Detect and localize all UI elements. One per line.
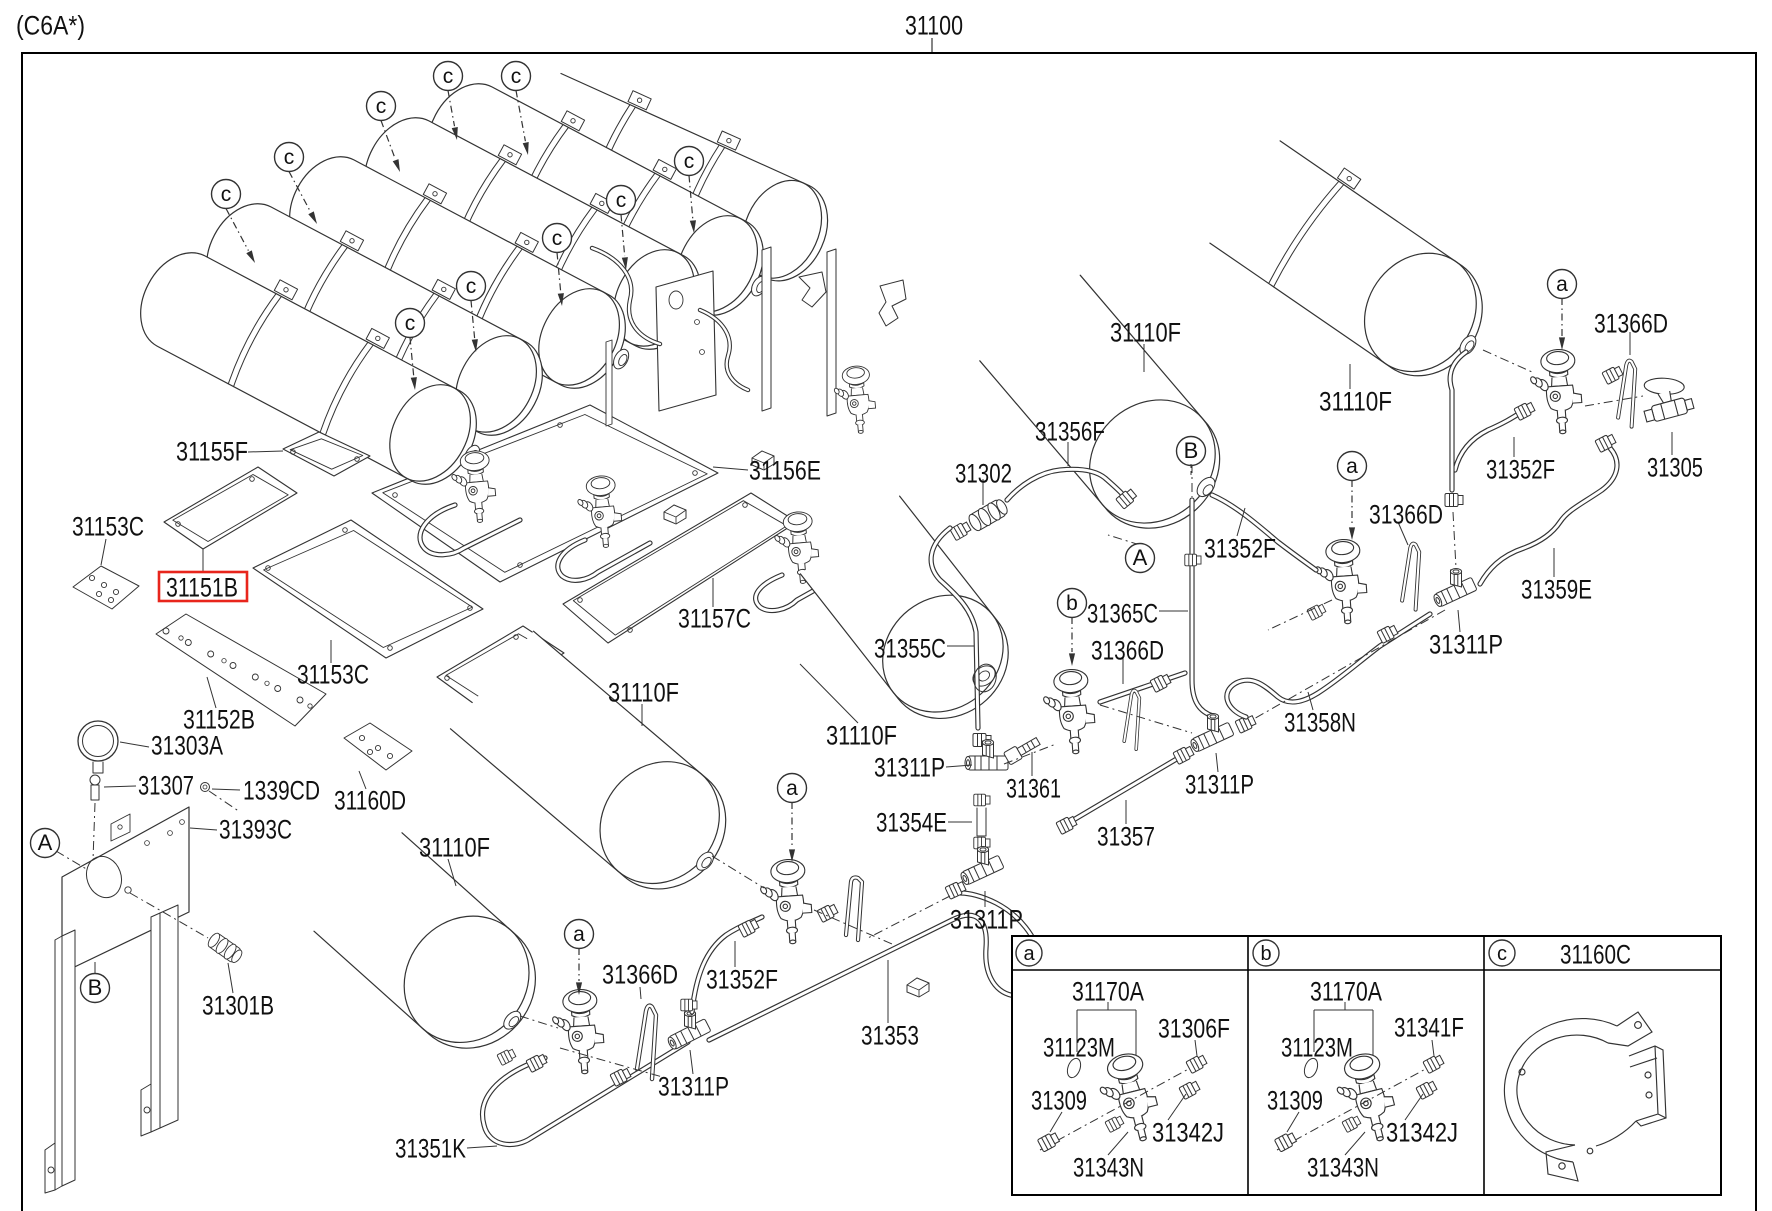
svg-text:31365C: 31365C <box>1087 599 1158 629</box>
svg-text:31100: 31100 <box>905 11 963 41</box>
svg-text:31354E: 31354E <box>876 808 947 838</box>
svg-text:31157C: 31157C <box>678 604 751 634</box>
svg-text:c: c <box>1497 943 1507 965</box>
svg-text:B: B <box>1184 438 1199 463</box>
svg-text:B: B <box>88 975 103 1000</box>
svg-text:31110F: 31110F <box>1319 387 1392 417</box>
svg-text:31302: 31302 <box>955 459 1012 489</box>
svg-text:31301B: 31301B <box>202 991 274 1021</box>
svg-text:31341F: 31341F <box>1394 1013 1464 1043</box>
svg-text:31110F: 31110F <box>608 678 679 708</box>
svg-text:31353: 31353 <box>861 1021 919 1051</box>
svg-text:a: a <box>573 923 585 946</box>
svg-text:31311P: 31311P <box>950 905 1023 935</box>
svg-text:31366D: 31366D <box>602 960 678 990</box>
svg-text:b: b <box>1260 943 1271 965</box>
svg-text:31366D: 31366D <box>1091 636 1164 666</box>
svg-text:31393C: 31393C <box>219 815 292 845</box>
svg-text:31366D: 31366D <box>1369 500 1443 530</box>
svg-text:a: a <box>786 777 798 800</box>
svg-text:31311P: 31311P <box>1429 630 1503 660</box>
svg-text:A: A <box>38 830 53 855</box>
svg-text:31306F: 31306F <box>1158 1014 1230 1044</box>
svg-text:31352F: 31352F <box>1204 534 1276 564</box>
svg-text:31123M: 31123M <box>1043 1033 1115 1063</box>
svg-text:31156E: 31156E <box>749 456 821 486</box>
svg-text:A: A <box>1133 545 1148 570</box>
svg-text:c: c <box>221 183 232 206</box>
svg-text:c: c <box>684 150 695 173</box>
svg-text:c: c <box>511 65 522 88</box>
svg-text:31303A: 31303A <box>151 731 223 761</box>
svg-text:c: c <box>552 227 563 250</box>
svg-text:31151B: 31151B <box>166 573 238 603</box>
svg-text:31110F: 31110F <box>826 721 897 751</box>
svg-text:31309: 31309 <box>1267 1086 1323 1116</box>
svg-text:(C6A*): (C6A*) <box>16 11 85 41</box>
svg-text:31170A: 31170A <box>1310 977 1382 1007</box>
svg-text:31355C: 31355C <box>874 634 946 664</box>
svg-text:31366D: 31366D <box>1594 309 1668 339</box>
svg-text:31342J: 31342J <box>1386 1118 1458 1148</box>
svg-text:c: c <box>466 275 477 298</box>
svg-text:31110F: 31110F <box>1110 318 1181 348</box>
svg-text:31309: 31309 <box>1031 1086 1087 1116</box>
svg-text:c: c <box>284 146 295 169</box>
svg-text:a: a <box>1556 273 1568 296</box>
svg-text:31155F: 31155F <box>176 437 248 467</box>
svg-text:31307: 31307 <box>138 771 194 801</box>
svg-text:31352F: 31352F <box>1486 455 1555 485</box>
svg-text:31358N: 31358N <box>1284 708 1356 738</box>
svg-text:31123M: 31123M <box>1281 1033 1353 1063</box>
svg-text:31160C: 31160C <box>1560 940 1631 970</box>
svg-text:c: c <box>376 95 387 118</box>
svg-text:31359E: 31359E <box>1521 575 1592 605</box>
svg-text:c: c <box>616 189 627 212</box>
svg-text:31342J: 31342J <box>1152 1118 1224 1148</box>
svg-text:31110F: 31110F <box>419 833 490 863</box>
svg-text:31361: 31361 <box>1006 774 1061 804</box>
svg-text:31343N: 31343N <box>1073 1153 1144 1183</box>
svg-text:31357: 31357 <box>1097 822 1155 852</box>
svg-text:31311P: 31311P <box>658 1072 729 1102</box>
svg-text:31160D: 31160D <box>334 786 406 816</box>
svg-text:c: c <box>405 312 416 335</box>
svg-text:c: c <box>443 65 454 88</box>
svg-text:31343N: 31343N <box>1307 1153 1379 1183</box>
svg-text:31352F: 31352F <box>706 965 778 995</box>
svg-text:31356F: 31356F <box>1035 417 1105 447</box>
svg-text:31305: 31305 <box>1647 453 1703 483</box>
svg-text:31153C: 31153C <box>297 660 369 690</box>
svg-text:31311P: 31311P <box>1185 770 1254 800</box>
svg-text:31153C: 31153C <box>72 512 144 542</box>
svg-text:a: a <box>1346 455 1358 478</box>
svg-text:31311P: 31311P <box>874 753 945 783</box>
svg-text:b: b <box>1066 592 1078 615</box>
svg-text:1339CD: 1339CD <box>243 776 320 806</box>
svg-text:31170A: 31170A <box>1072 977 1144 1007</box>
svg-text:a: a <box>1023 943 1035 965</box>
svg-text:31351K: 31351K <box>395 1134 466 1164</box>
